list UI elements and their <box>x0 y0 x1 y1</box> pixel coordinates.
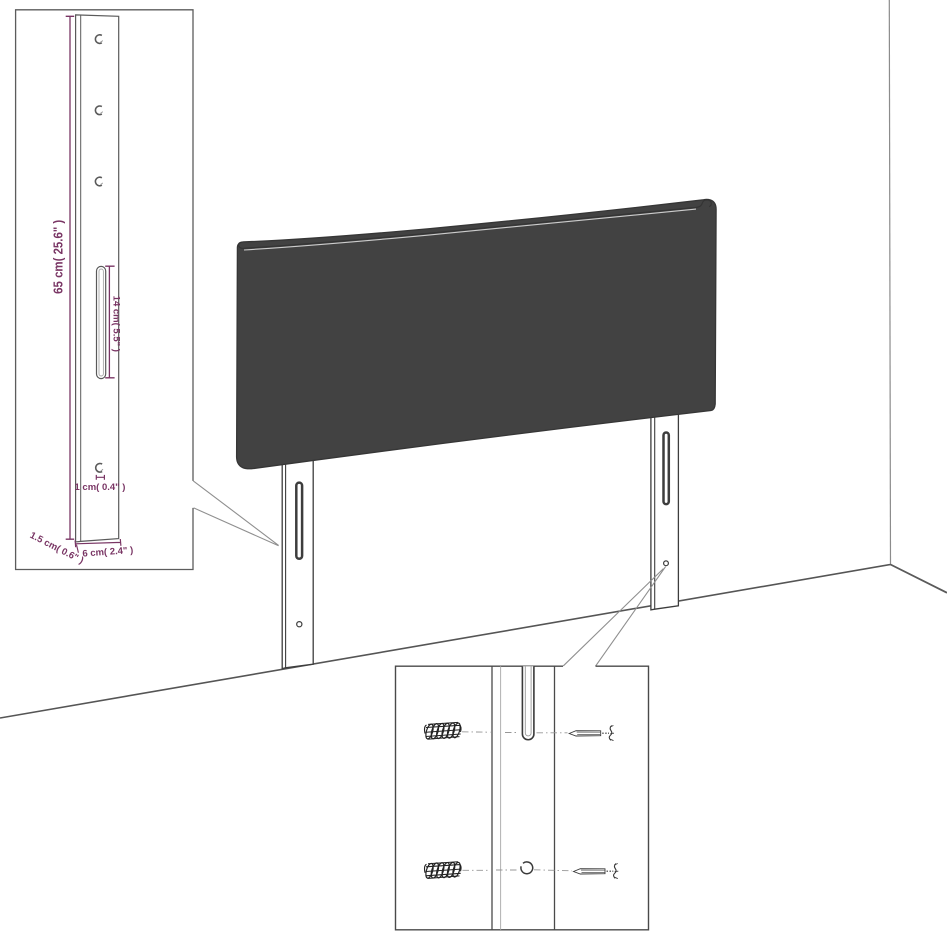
svg-text:1 cm( 0.4" ): 1 cm( 0.4" ) <box>75 482 126 493</box>
svg-text:14 cm( 5.5" ): 14 cm( 5.5" ) <box>111 296 122 352</box>
svg-text:65 cm( 25.6" ): 65 cm( 25.6" ) <box>51 220 66 294</box>
